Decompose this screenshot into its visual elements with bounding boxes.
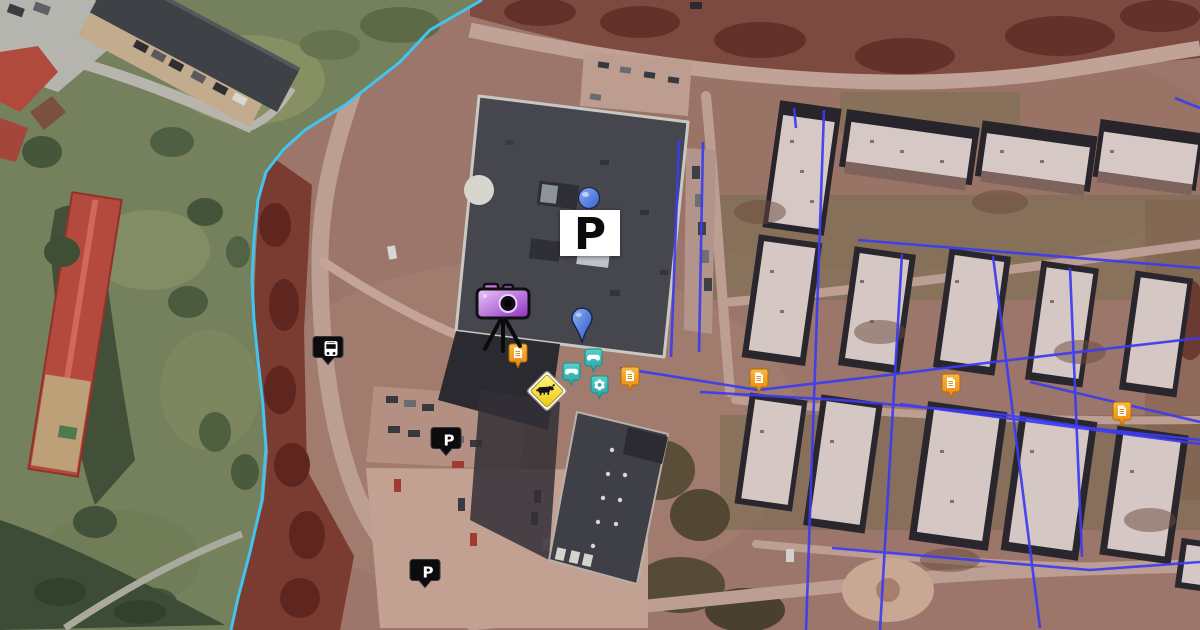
note-marker[interactable] [941, 373, 961, 400]
bus-stop-marker[interactable] [318, 335, 344, 369]
map-canvas[interactable]: P P P [0, 0, 1200, 630]
webcam-marker[interactable] [472, 283, 534, 355]
flower-marker[interactable] [590, 375, 609, 401]
parking-sign-marker[interactable]: P [560, 185, 620, 257]
game-controller-marker[interactable] [584, 348, 603, 374]
note-marker[interactable] [749, 368, 769, 395]
svg-text:P: P [423, 564, 434, 582]
game-controller-marker[interactable] [562, 362, 581, 388]
map-pin-marker[interactable] [571, 307, 593, 349]
svg-text:P: P [444, 432, 455, 450]
svg-text:P: P [574, 209, 606, 260]
parking-marker[interactable]: P [436, 426, 462, 460]
aerial-imagery [0, 0, 1200, 630]
note-marker[interactable] [1112, 401, 1132, 428]
note-marker[interactable] [620, 366, 640, 393]
parking-marker[interactable]: P [415, 558, 441, 592]
